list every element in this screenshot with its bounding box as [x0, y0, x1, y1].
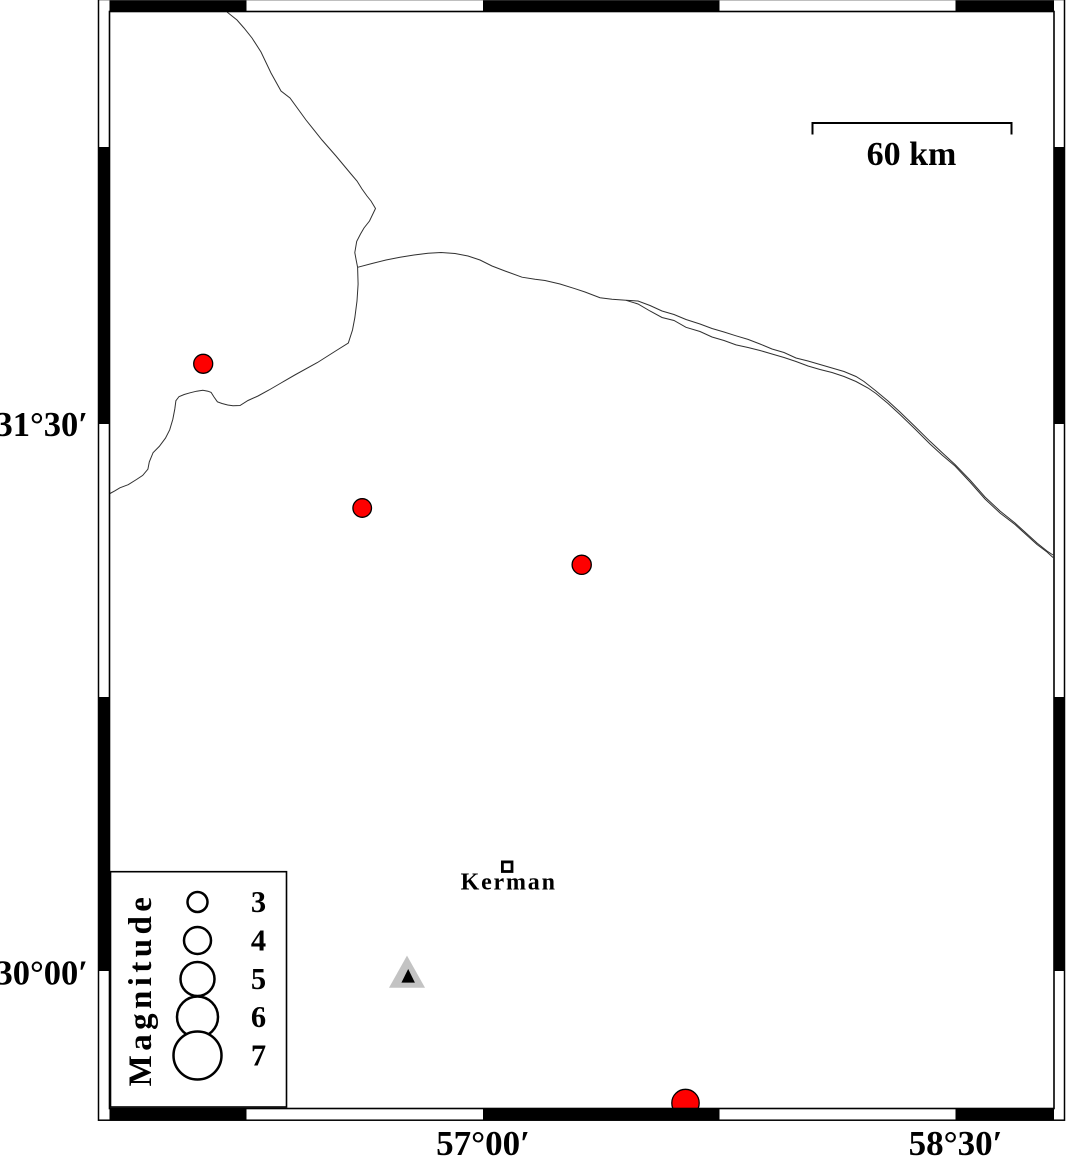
svg-text:58°30′: 58°30′: [909, 1124, 1003, 1158]
svg-text:Magnitude: Magnitude: [123, 893, 159, 1087]
svg-text:60 km: 60 km: [867, 136, 957, 173]
svg-text:5: 5: [251, 962, 266, 996]
svg-text:31°30′: 31°30′: [0, 406, 88, 444]
svg-text:3: 3: [251, 885, 266, 919]
svg-text:57°00′: 57°00′: [436, 1124, 530, 1158]
svg-text:30°00′: 30°00′: [0, 955, 88, 993]
svg-text:Kerman: Kerman: [461, 870, 557, 896]
svg-text:4: 4: [251, 923, 266, 957]
svg-text:6: 6: [251, 1000, 266, 1034]
svg-text:7: 7: [251, 1038, 266, 1072]
